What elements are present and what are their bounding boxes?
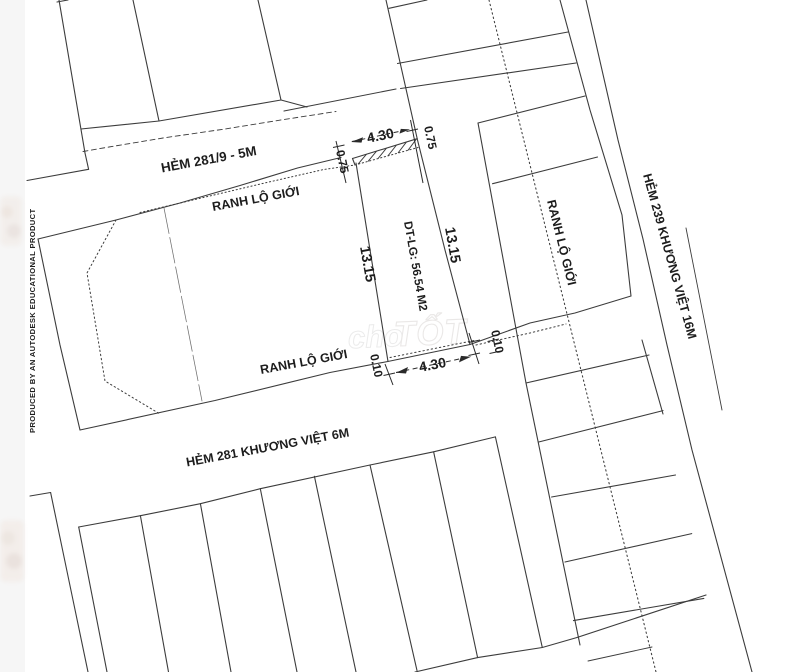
svg-text:PRODUCED BY AN AUTODESK EDUCAT: PRODUCED BY AN AUTODESK EDUCATIONAL PROD… [28,209,37,433]
svg-text:TỐT: TỐT [393,311,469,354]
